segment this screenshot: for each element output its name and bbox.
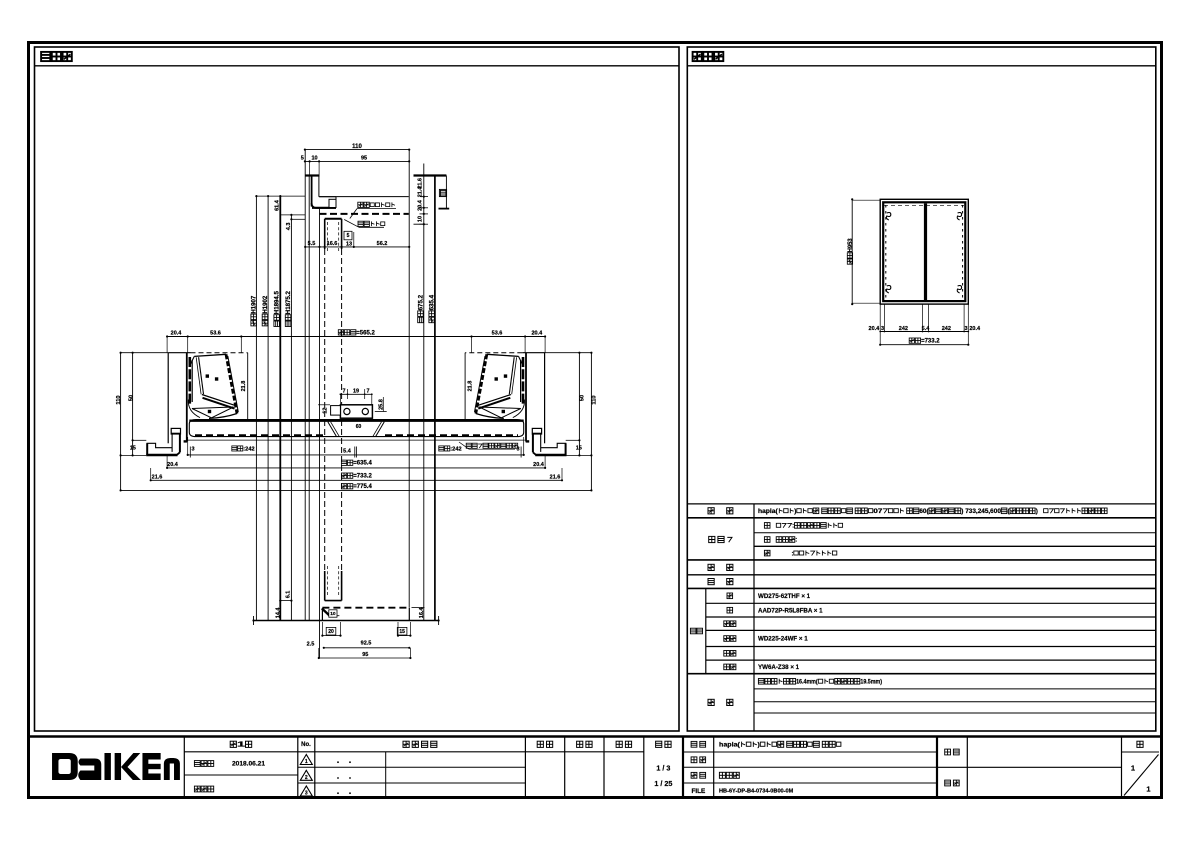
svg-text:10: 10 — [311, 156, 317, 162]
svg-text:95: 95 — [361, 156, 367, 162]
svg-text:242: 242 — [899, 326, 908, 332]
svg-text:95: 95 — [362, 652, 368, 658]
svg-text:20.4: 20.4 — [531, 331, 543, 337]
svg-text:2: 2 — [305, 775, 308, 781]
svg-text:21.6: 21.6 — [550, 475, 561, 481]
svg-text:WD225-24WF × 1: WD225-24WF × 1 — [758, 636, 808, 643]
svg-text:1 / 25: 1 / 25 — [654, 779, 672, 788]
svg-text:07: 07 — [873, 508, 883, 515]
svg-text:60: 60 — [356, 424, 362, 430]
svg-text:1: 1 — [1131, 764, 1135, 773]
svg-text:3: 3 — [305, 791, 308, 797]
svg-text:53.6: 53.6 — [210, 331, 221, 337]
svg-text:5.5: 5.5 — [308, 241, 316, 247]
svg-text:14.4: 14.4 — [276, 607, 282, 619]
svg-text:3: 3 — [964, 326, 967, 332]
svg-text:HB-6Y-DP-B4-0734-0B00-0M: HB-6Y-DP-B4-0734-0B00-0M — [719, 789, 794, 795]
svg-text::: : — [792, 550, 794, 557]
svg-text:16.4mm(: 16.4mm( — [796, 679, 818, 686]
svg-text:3: 3 — [516, 446, 519, 452]
svg-text:YW6A-Z38 × 1: YW6A-Z38 × 1 — [758, 664, 800, 671]
svg-text::242: :242 — [450, 447, 461, 453]
svg-text:H1875.2: H1875.2 — [285, 291, 292, 315]
svg-text:1: 1 — [305, 759, 308, 765]
svg-text:1: 1 — [237, 742, 245, 749]
svg-text:53.6: 53.6 — [492, 331, 503, 337]
svg-text:5.4: 5.4 — [343, 449, 352, 455]
svg-text:5: 5 — [347, 233, 350, 239]
svg-text:hapia(: hapia( — [719, 742, 741, 749]
svg-text:1: 1 — [1146, 785, 1150, 794]
svg-text:): ) — [794, 508, 796, 515]
svg-text::242: :242 — [243, 447, 254, 453]
svg-text:21.8: 21.8 — [241, 381, 247, 392]
svg-text:H1894.5: H1894.5 — [274, 291, 281, 315]
svg-text:H1907: H1907 — [251, 295, 258, 313]
svg-text:=565.2: =565.2 — [356, 330, 375, 336]
svg-text:5: 5 — [301, 156, 304, 162]
svg-text:=775.4: =775.4 — [353, 484, 372, 490]
svg-text:3: 3 — [881, 326, 884, 332]
svg-text:No.: No. — [301, 742, 311, 748]
svg-text:19: 19 — [353, 389, 359, 395]
svg-text:20: 20 — [328, 629, 334, 635]
svg-text:) 733,245,600: ) 733,245,600 — [961, 508, 1001, 515]
svg-text:110: 110 — [592, 395, 598, 404]
svg-text:12: 12 — [322, 408, 328, 414]
svg-text:2.5: 2.5 — [307, 642, 315, 648]
svg-text:20.4: 20.4 — [167, 462, 179, 468]
svg-text:WD275-62THF × 1: WD275-62THF × 1 — [758, 593, 811, 600]
svg-text:hapia(: hapia( — [758, 508, 779, 515]
svg-text:7: 7 — [342, 389, 345, 395]
svg-text:H1902: H1902 — [262, 295, 269, 313]
svg-text:21.4: 21.4 — [418, 186, 424, 198]
svg-text:56.2: 56.2 — [377, 241, 388, 247]
svg-text:21.8: 21.8 — [468, 381, 474, 392]
svg-text:21.6: 21.6 — [152, 475, 163, 481]
svg-text:10: 10 — [330, 611, 336, 617]
svg-text:6.1: 6.1 — [286, 591, 292, 599]
svg-text:92.5: 92.5 — [361, 641, 372, 647]
svg-text:15: 15 — [130, 446, 136, 452]
svg-text:H953: H953 — [848, 238, 854, 253]
svg-text:110: 110 — [352, 144, 362, 150]
svg-text:20.4: 20.4 — [171, 331, 183, 337]
svg-text:15: 15 — [399, 629, 405, 635]
svg-text:2018.06.21: 2018.06.21 — [232, 761, 265, 768]
svg-text:3: 3 — [191, 446, 194, 452]
svg-text:7: 7 — [366, 389, 369, 395]
svg-text:1 / 3: 1 / 3 — [656, 763, 670, 772]
svg-text:4.3: 4.3 — [286, 223, 292, 231]
svg-text:5.4: 5.4 — [922, 326, 931, 332]
svg-text:20.4: 20.4 — [533, 462, 545, 468]
svg-text:50: 50 — [128, 395, 134, 401]
svg-text::: : — [795, 537, 797, 544]
svg-text:19.5mm): 19.5mm) — [860, 679, 882, 686]
svg-text:20.4: 20.4 — [869, 326, 881, 332]
svg-text:16.6: 16.6 — [327, 241, 338, 247]
svg-text:50: 50 — [580, 395, 586, 401]
svg-text:15: 15 — [576, 446, 582, 452]
svg-text:=733.2: =733.2 — [921, 339, 940, 345]
svg-text:=635.4: =635.4 — [353, 461, 372, 467]
svg-text:20.4: 20.4 — [418, 199, 424, 211]
svg-text:AAD72P-R5L8FBA × 1: AAD72P-R5L8FBA × 1 — [758, 607, 823, 614]
svg-text:10: 10 — [417, 216, 423, 222]
svg-text:110: 110 — [116, 395, 122, 404]
svg-text:=733.2: =733.2 — [353, 474, 372, 480]
svg-text:635.4: 635.4 — [429, 294, 436, 310]
svg-text:675.2: 675.2 — [418, 294, 425, 310]
svg-text:16.4: 16.4 — [419, 607, 425, 619]
svg-text::: : — [792, 523, 794, 530]
svg-text:60(: 60( — [919, 508, 929, 515]
svg-text:FILE: FILE — [691, 788, 706, 795]
svg-text:): ) — [1036, 508, 1038, 515]
svg-text:): ) — [758, 742, 760, 749]
svg-text:20.4: 20.4 — [969, 326, 981, 332]
svg-text:242: 242 — [942, 326, 951, 332]
svg-text:61.4: 61.4 — [275, 199, 281, 211]
